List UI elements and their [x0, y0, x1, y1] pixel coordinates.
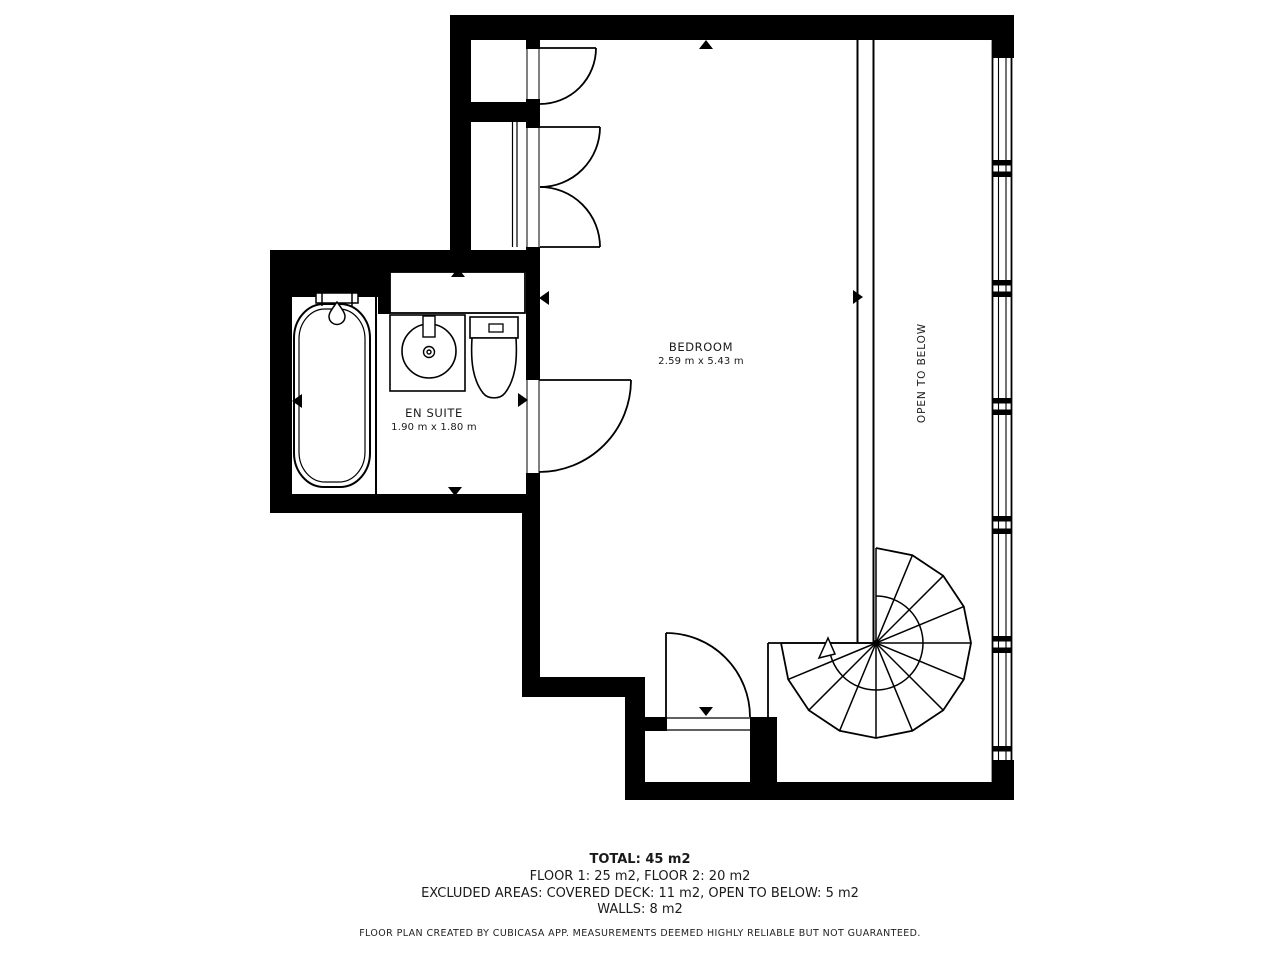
open-to-below-label: OPEN TO BELOW [916, 323, 928, 423]
counter-top [390, 272, 525, 313]
wall-segment [380, 250, 540, 272]
wall-segment [378, 272, 390, 314]
ensuite-dimensions: 1.90 m x 1.80 m [391, 422, 477, 433]
bedroom-dimensions: 2.59 m x 5.43 m [658, 356, 744, 367]
sink-faucet [423, 316, 435, 337]
wall-segment [645, 717, 667, 731]
stair-center-post [873, 640, 879, 646]
summary-excluded-areas: EXCLUDED AREAS: COVERED DECK: 11 m2, OPE… [0, 886, 1280, 902]
wall-segment [526, 40, 540, 49]
bathtub [294, 304, 370, 487]
summary-floors: FLOOR 1: 25 m2, FLOOR 2: 20 m2 [0, 869, 1280, 885]
summary-walls: WALLS: 8 m2 [0, 902, 1280, 918]
ensuite-label: EN SUITE [405, 406, 463, 420]
floor-plan-page: BEDROOM 2.59 m x 5.43 m EN SUITE 1.90 m … [0, 0, 1280, 960]
vanity-counter [390, 272, 525, 313]
window-frame [993, 41, 1012, 798]
wall-segment [992, 40, 1014, 58]
bathtub-rim [299, 309, 365, 482]
wall-segment [526, 473, 540, 513]
wall-segment [627, 782, 1014, 800]
wall-segment [526, 272, 540, 380]
bedroom-label: BEDROOM [669, 340, 733, 354]
wall-segment [522, 677, 645, 697]
wall-segment [526, 99, 540, 128]
toilet-flush-button [489, 324, 503, 332]
sink [390, 315, 465, 391]
window-band [993, 41, 1012, 798]
wall-segment [450, 15, 471, 272]
wall-segment [992, 760, 1014, 800]
wall-segment [750, 717, 777, 782]
wall-segment [522, 513, 540, 697]
floor-plan: BEDROOM 2.59 m x 5.43 m EN SUITE 1.90 m … [0, 0, 1280, 960]
sink-drain-center [427, 350, 431, 354]
summary-total: TOTAL: 45 m2 [0, 852, 1280, 868]
wall-segment [270, 494, 540, 513]
wall-segment [450, 15, 1014, 40]
disclaimer-text: FLOOR PLAN CREATED BY CUBICASA APP. MEAS… [0, 928, 1280, 939]
plan-background [0, 0, 1280, 960]
wall-segment [270, 250, 292, 513]
